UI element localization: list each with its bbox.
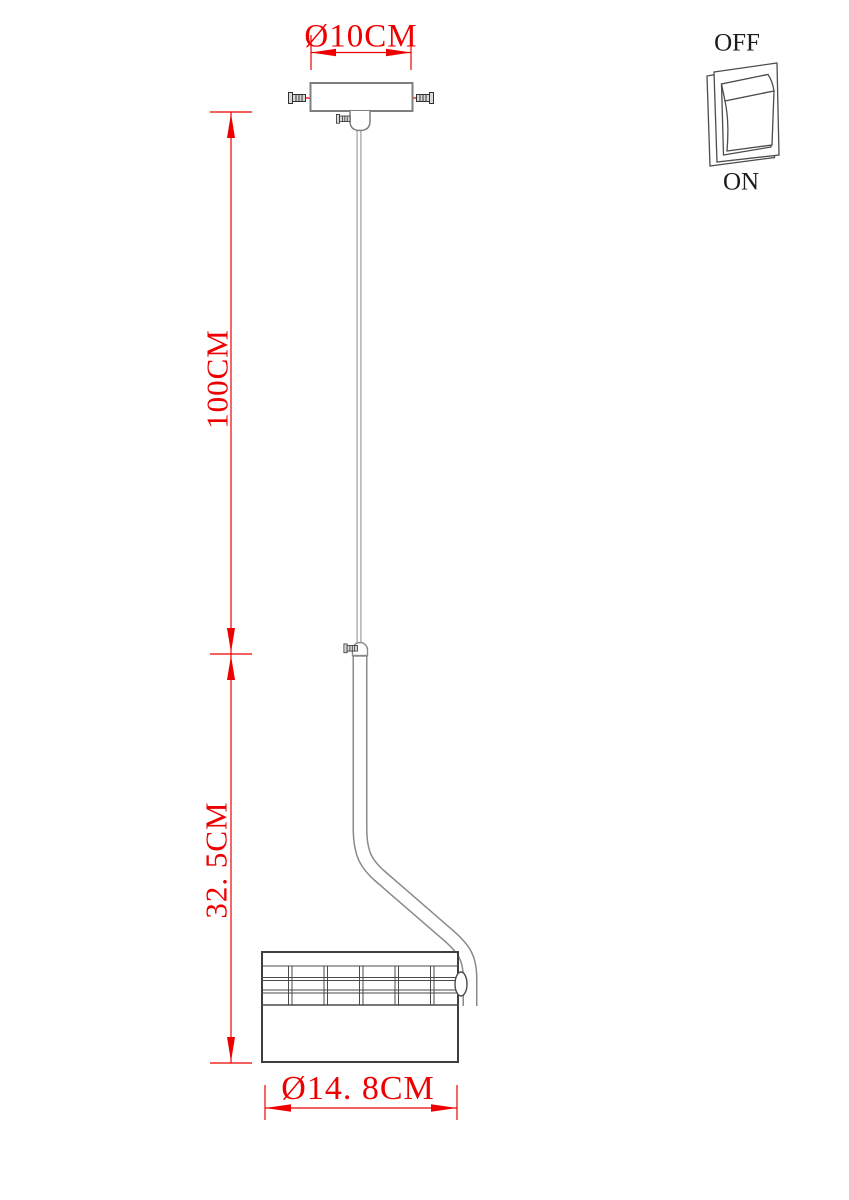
switch-rocker-front [725, 91, 774, 151]
line-art [0, 0, 849, 1200]
fixture-drop-label: 32. 5CM [201, 801, 232, 918]
switch-off-label: OFF [714, 31, 760, 56]
canopy-diameter-label: Ø10CM [304, 21, 417, 54]
diagram-canvas: Ø10CM 100CM 32. 5CM Ø14. 8CM OFF ON [0, 0, 849, 1200]
cable-grip-cup [350, 111, 370, 131]
screw-icon [289, 93, 306, 104]
ceiling-canopy [311, 83, 413, 131]
dimension-vertical-lengths [210, 112, 252, 1063]
suspension-length-label: 100CM [202, 329, 233, 429]
screw-icon [344, 644, 358, 653]
screw-icon [417, 93, 434, 104]
rocker-switch-icon [707, 63, 779, 166]
arm-pivot-knob [455, 972, 467, 996]
lampshade [262, 952, 458, 1062]
screw-icon [336, 114, 350, 123]
shade-diameter-label: Ø14. 8CM [281, 1072, 434, 1106]
switch-on-label: ON [723, 170, 759, 195]
